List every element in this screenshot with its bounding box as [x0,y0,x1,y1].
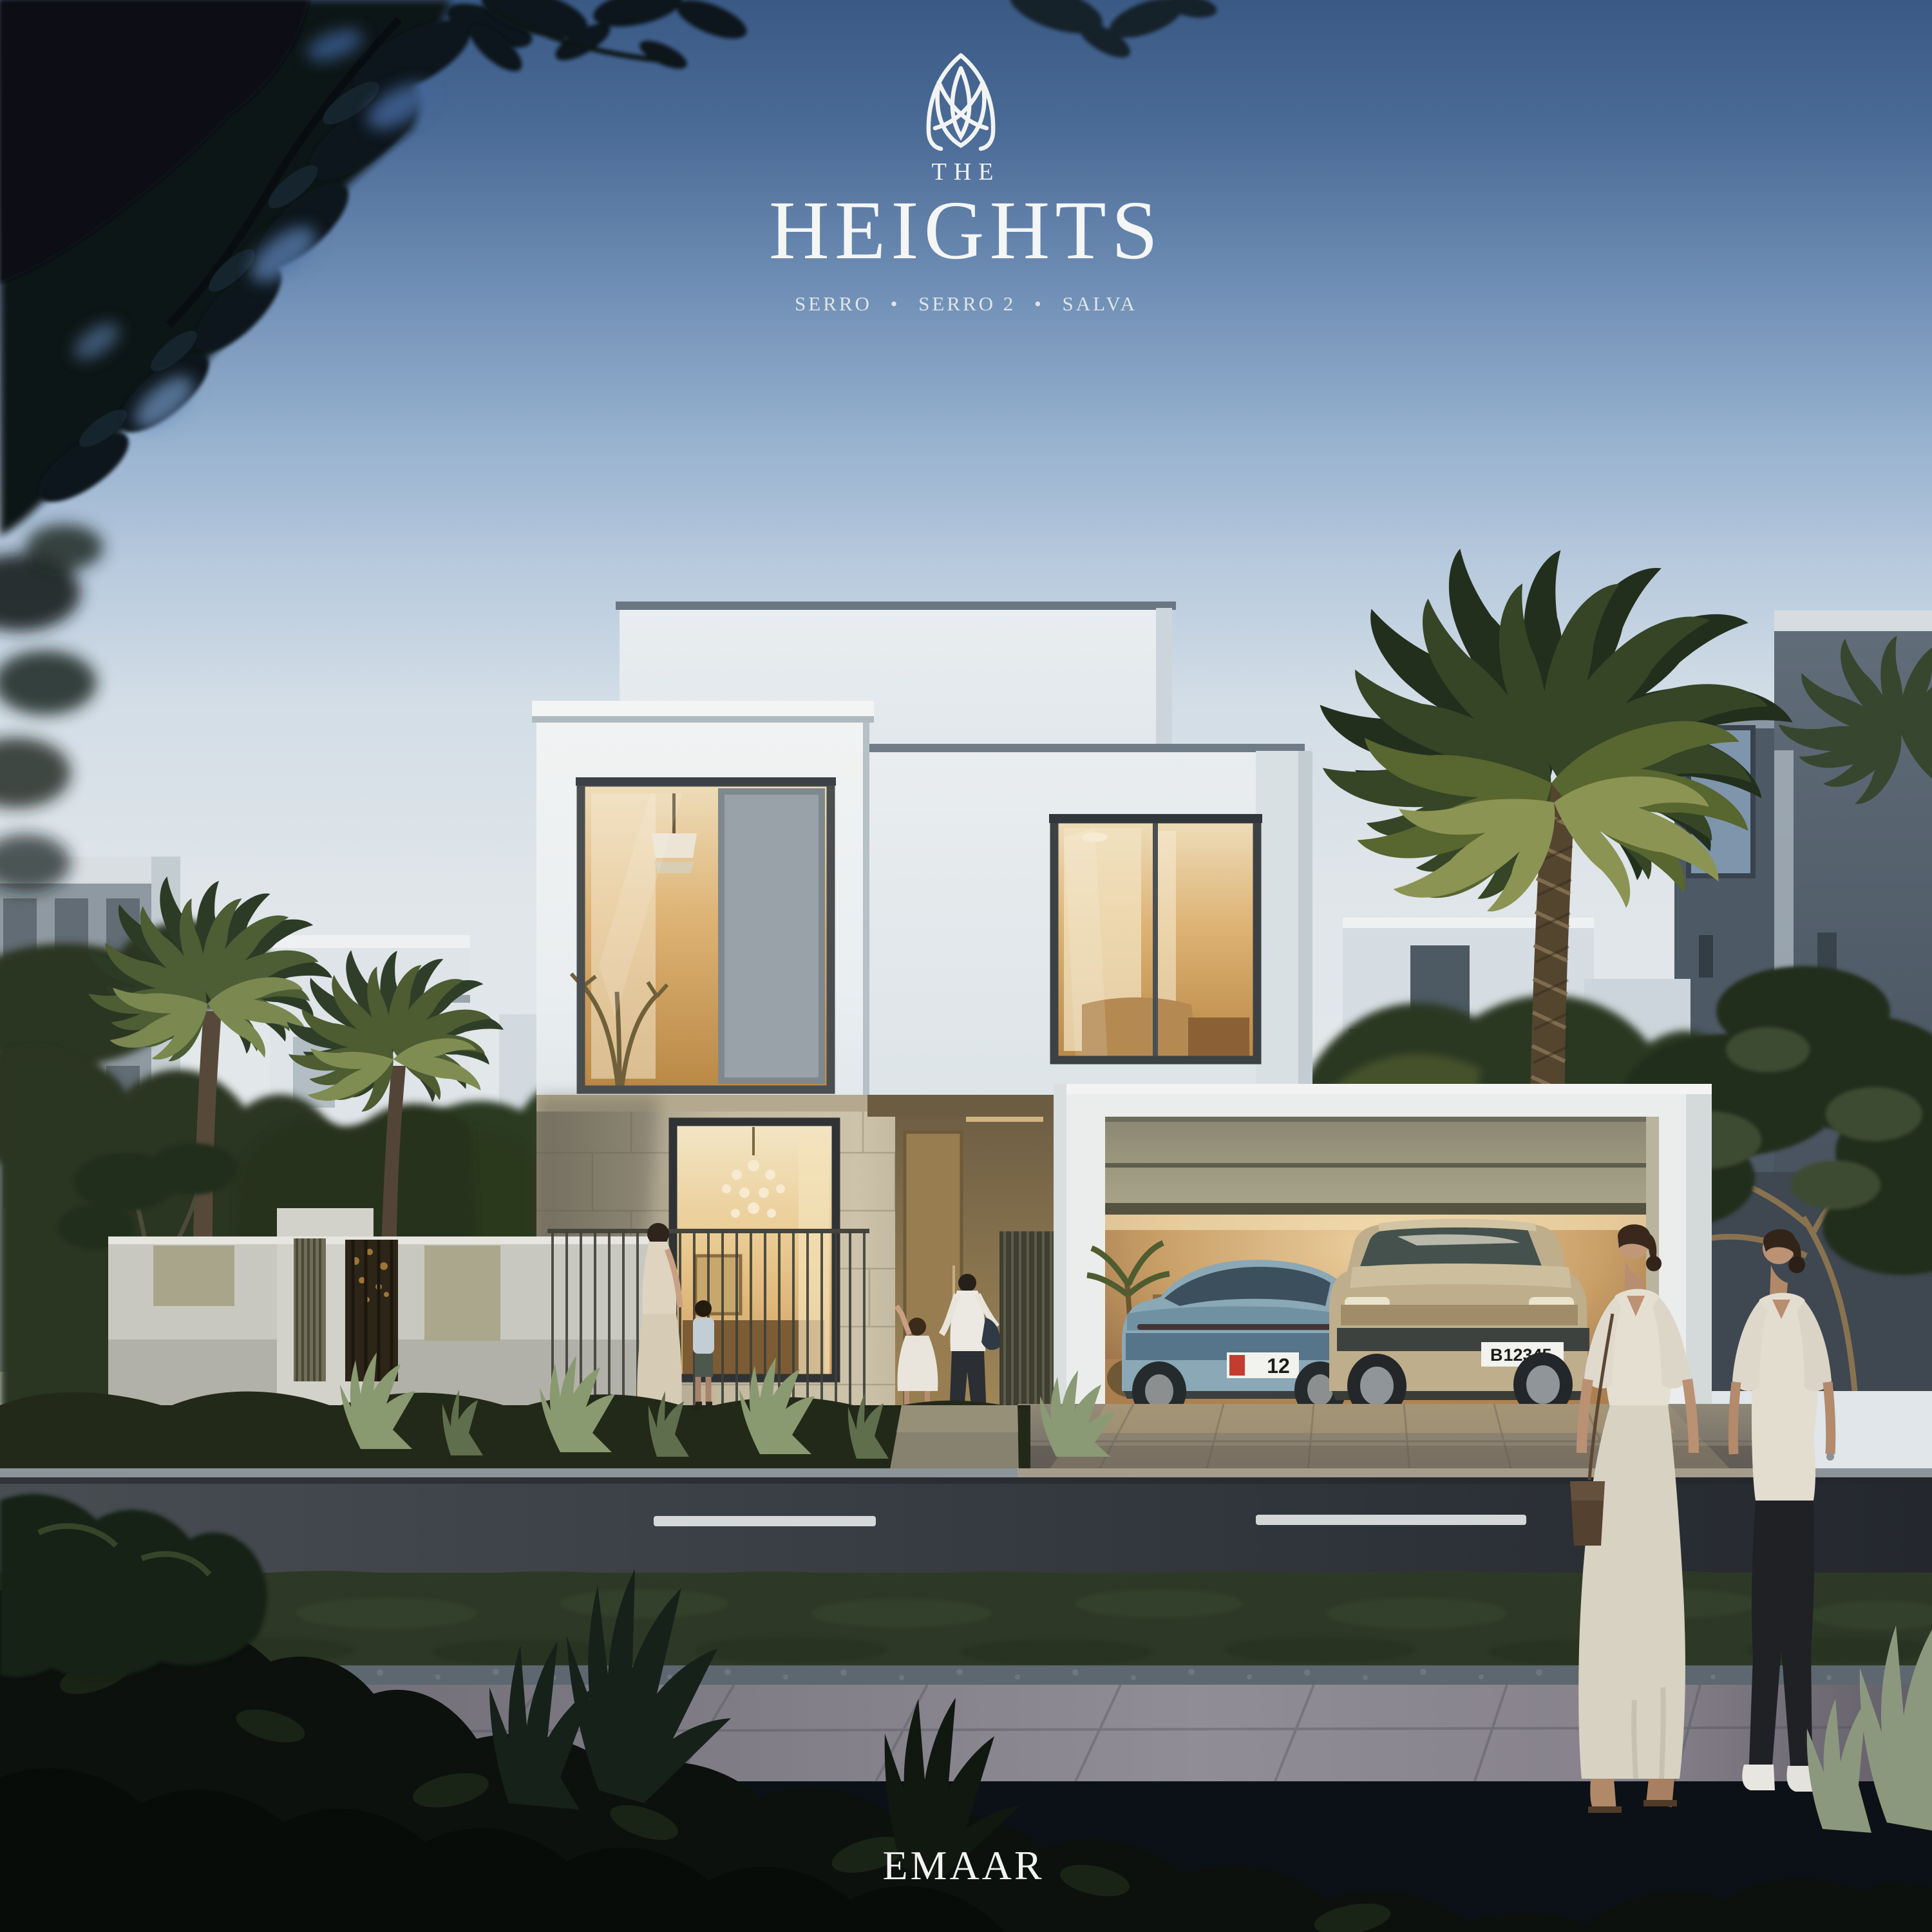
svg-text:HEIGHTS: HEIGHTS [769,184,1163,277]
svg-text:B: B [1490,1345,1503,1365]
svg-text:EMAAR: EMAAR [882,1842,1044,1888]
svg-text:SERRO • SERRO 2 • SALVA: SERRO • SERRO 2 • SALVA [795,292,1137,315]
svg-text:12: 12 [1267,1354,1290,1378]
svg-text:THE: THE [932,158,1001,185]
